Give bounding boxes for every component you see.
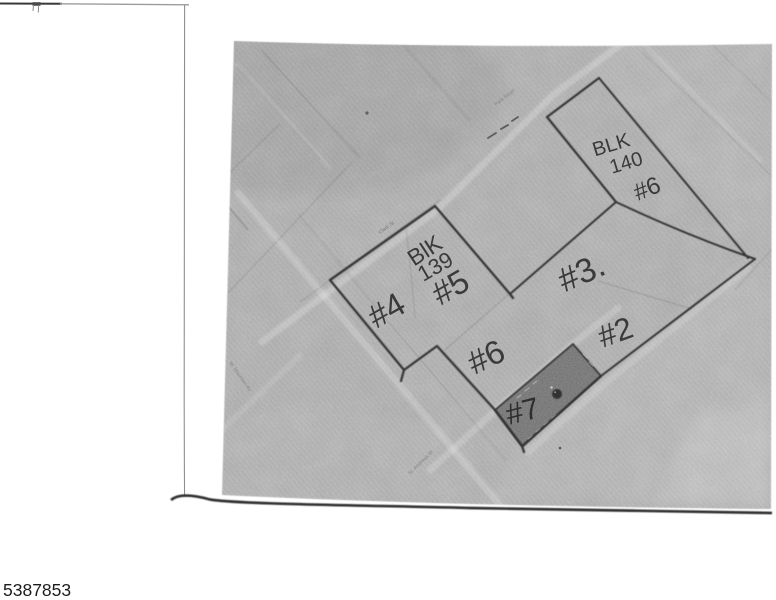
svg-text:5387853: 5387853 (3, 580, 71, 600)
